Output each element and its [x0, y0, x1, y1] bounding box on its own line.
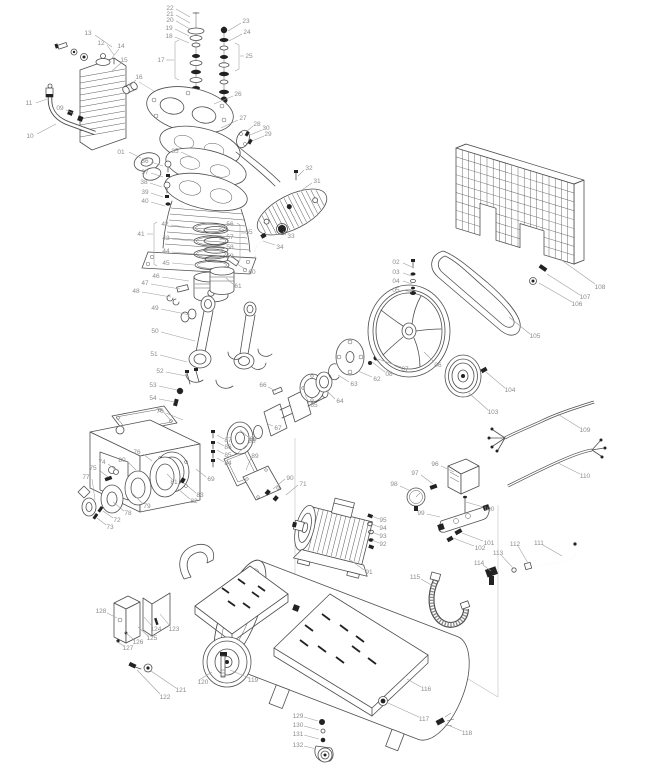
callout-11: 11: [26, 100, 33, 107]
callout-51: 51: [150, 351, 158, 358]
callout-66: 66: [259, 382, 267, 389]
callout-leader-111: [543, 545, 562, 556]
discharge-pipe: [485, 542, 577, 585]
rod-caps: [185, 368, 233, 388]
callout-98: 98: [390, 481, 398, 488]
callout-09: 09: [56, 105, 64, 112]
callout-07: 07: [401, 366, 409, 373]
filter-fittings: [54, 43, 87, 61]
piston-small: [210, 267, 234, 295]
callout-63: 63: [350, 381, 358, 388]
callout-37: 37: [141, 169, 149, 176]
callout-25: 25: [245, 53, 253, 60]
callout-leader-24: [229, 34, 242, 41]
callout-leader-92: [372, 540, 379, 543]
callout-35: 35: [171, 148, 179, 155]
callout-112: 112: [510, 541, 521, 548]
callout-56: 56: [226, 221, 234, 228]
callout-52: 52: [156, 368, 164, 375]
callout-leader-104: [486, 372, 505, 388]
callout-leader-17: [175, 40, 179, 80]
callout-leader-101: [462, 533, 483, 541]
callout-leader-98: [400, 486, 411, 491]
callout-leader-46: [162, 277, 189, 281]
callout-62: 62: [373, 376, 381, 383]
air-filter: [80, 54, 126, 151]
callout-129: 129: [293, 713, 304, 720]
callout-70: 70: [156, 408, 164, 415]
callout-19: 19: [165, 25, 173, 32]
callout-leader-122: [137, 670, 160, 694]
wheel-assembly: [128, 637, 251, 687]
callout-33: 33: [287, 233, 295, 240]
callout-105: 105: [530, 333, 541, 340]
callout-22: 22: [166, 5, 174, 12]
callout-leader-103: [469, 393, 488, 410]
woodruff-key: [273, 387, 283, 394]
callout-38: 38: [140, 179, 148, 186]
power-cable-2: [508, 439, 607, 487]
caster-assembly: [315, 719, 333, 762]
callout-leader-01: [129, 152, 141, 158]
callout-leader-54: [159, 399, 175, 402]
callout-104: 104: [505, 387, 516, 394]
callout-132: 132: [293, 742, 304, 749]
callout-leader-132: [304, 746, 316, 749]
wrist-pin-large: [167, 285, 189, 305]
callout-leader-95: [372, 516, 379, 519]
callout-93: 93: [379, 533, 387, 540]
elbow-fitting: [485, 566, 498, 585]
callout-leader-106: [539, 283, 572, 302]
callout-02: 02: [392, 259, 400, 266]
shaft-flange: [336, 339, 364, 375]
cooler-bolt: [294, 170, 298, 173]
motor-pulley: [445, 355, 488, 397]
callout-leader-25: [235, 43, 239, 71]
hose-flexible: [430, 572, 470, 625]
callout-leader-85: [217, 450, 224, 454]
callout-leader-29: [252, 136, 264, 141]
callout-120: 120: [198, 679, 209, 686]
callout-102: 102: [475, 545, 486, 552]
callout-99: 99: [417, 510, 425, 517]
callout-59: 59: [226, 253, 234, 260]
callout-24: 24: [243, 29, 251, 36]
callout-128: 128: [96, 608, 107, 615]
cover-washer: [114, 470, 119, 475]
pressure-gauge: [407, 488, 425, 511]
callout-94: 94: [379, 525, 387, 532]
belt-guard-grid: [456, 141, 584, 267]
callout-06: 06: [434, 362, 442, 369]
callout-95: 95: [379, 517, 387, 524]
callout-103: 103: [488, 409, 499, 416]
callout-17: 17: [157, 57, 165, 64]
oil-seal: [316, 372, 332, 392]
callout-leader-53: [159, 386, 177, 390]
callout-91: 91: [365, 569, 373, 576]
callout-leader-30: [250, 130, 262, 135]
callout-leader-63: [338, 375, 349, 382]
valve-stack-left: [188, 12, 204, 100]
callout-leader-129: [304, 717, 318, 721]
pressure-switch: [448, 459, 479, 518]
callout-leader-105: [509, 317, 530, 334]
callout-49: 49: [151, 305, 159, 312]
oil-filler: [116, 426, 124, 434]
pipe-nut: [524, 562, 531, 569]
callout-107: 107: [580, 294, 591, 301]
callout-55: 55: [245, 229, 253, 236]
cover-screw: [273, 495, 279, 501]
callout-40: 40: [141, 198, 149, 205]
callout-leader-97: [421, 475, 433, 484]
callout-21: 21: [166, 11, 174, 18]
callout-48: 48: [132, 288, 140, 295]
callout-leader-62: [358, 371, 372, 377]
callout-10: 10: [26, 133, 34, 140]
callout-leader-100: [466, 502, 483, 507]
callout-03: 03: [392, 269, 400, 276]
callout-leader-39: [151, 193, 163, 197]
callout-20: 20: [166, 17, 174, 24]
callout-34: 34: [276, 244, 284, 251]
callout-88: 88: [248, 438, 256, 445]
callout-leader-32: [298, 170, 304, 176]
callout-41: 41: [137, 231, 145, 238]
callout-75: 75: [89, 465, 97, 472]
snap-ring: [328, 364, 339, 380]
callout-42: 42: [161, 221, 169, 228]
callout-130: 130: [293, 722, 304, 729]
callout-45: 45: [162, 260, 170, 267]
callout-79: 79: [143, 503, 151, 510]
tank-leg: [269, 685, 289, 709]
callout-108: 108: [595, 284, 606, 291]
callout-47: 47: [141, 280, 149, 287]
callout-leader-28: [246, 126, 253, 132]
callout-57: 57: [226, 234, 234, 241]
callout-44: 44: [162, 248, 170, 255]
callout-23: 23: [242, 18, 250, 25]
callout-leader-110: [558, 463, 580, 474]
callout-77: 77: [82, 474, 90, 481]
callout-81: 81: [170, 479, 178, 486]
callout-36: 36: [141, 158, 149, 165]
callout-leader-130: [304, 726, 319, 730]
callout-leader-50: [161, 332, 195, 341]
callout-leader-40: [151, 202, 165, 206]
callout-leader-22: [176, 9, 190, 17]
callout-53: 53: [149, 382, 157, 389]
callout-leader-12: [107, 45, 114, 55]
callout-leader-102: [453, 538, 474, 546]
callout-leader-23: [228, 23, 241, 31]
callout-125: 125: [147, 635, 158, 642]
callout-82: 82: [190, 498, 198, 505]
callout-04: 04: [392, 278, 400, 285]
pipe-ferrule: [512, 568, 516, 572]
callout-50: 50: [151, 328, 159, 335]
callout-127: 127: [123, 645, 134, 652]
callout-leader-10: [37, 124, 56, 134]
callout-08: 08: [385, 371, 393, 378]
callout-71: 71: [299, 481, 307, 488]
callout-32: 32: [305, 165, 313, 172]
tank-leg: [386, 729, 405, 750]
connecting-rod-2: [234, 302, 256, 369]
callout-54: 54: [149, 395, 157, 402]
gauge-fitting: [429, 484, 437, 490]
tank-handle-left: [180, 544, 214, 579]
callout-leader-11: [36, 99, 47, 103]
connecting-rod-1: [189, 296, 215, 368]
callout-leader-73: [97, 518, 106, 525]
callout-121: 121: [176, 687, 187, 694]
callout-leader-02: [403, 263, 412, 267]
exploded-air-compressor-diagram: 0102030405060708091011121314151617181920…: [0, 0, 646, 768]
callout-117: 117: [419, 716, 430, 723]
callout-leader-20: [176, 21, 190, 29]
callout-74: 74: [98, 459, 106, 466]
callout-111: 111: [534, 540, 544, 547]
callout-87: 87: [224, 437, 232, 444]
callout-18: 18: [165, 33, 173, 40]
callout-43: 43: [162, 235, 170, 242]
callout-39: 39: [141, 189, 149, 196]
callout-leader-66: [268, 387, 276, 391]
callout-leader-21: [176, 15, 190, 23]
callout-leader-94: [372, 524, 379, 527]
callout-leader-112: [518, 546, 528, 563]
callout-61: 61: [234, 283, 242, 290]
wheel-bolt: [128, 662, 141, 669]
callout-65: 65: [310, 402, 318, 409]
flywheel-washer: [368, 361, 372, 365]
electric-box: [114, 596, 140, 643]
callout-26: 26: [234, 91, 242, 98]
callout-72: 72: [113, 517, 121, 524]
motor-bolts: [367, 513, 374, 549]
callout-86: 86: [224, 444, 232, 451]
callout-60: 60: [248, 269, 256, 276]
callout-78: 78: [124, 510, 132, 517]
callout-131: 131: [293, 731, 304, 738]
callout-16: 16: [135, 74, 143, 81]
callout-114: 114: [474, 560, 485, 567]
cap-hardware: [173, 388, 183, 406]
callout-leader-47: [151, 284, 180, 289]
callout-leader-38: [150, 183, 162, 187]
callout-leader-48: [142, 292, 171, 297]
callout-80: 80: [118, 457, 126, 464]
callout-90: 90: [286, 475, 294, 482]
callout-leader-52: [166, 372, 186, 376]
callout-15: 15: [120, 57, 128, 64]
callout-110: 110: [580, 473, 591, 480]
callout-124: 124: [151, 626, 162, 633]
callout-85: 85: [224, 452, 232, 459]
parts-diagram-page: 0102030405060708091011121314151617181920…: [0, 0, 646, 768]
callout-27: 27: [239, 115, 247, 122]
callout-30: 30: [262, 125, 270, 132]
callout-97: 97: [411, 470, 419, 477]
callout-leader-107: [547, 274, 580, 295]
callout-leader-84: [217, 458, 224, 462]
callout-leader-99: [427, 514, 440, 517]
callout-69: 69: [207, 476, 215, 483]
callout-leader-115: [421, 579, 433, 586]
callout-leader-18: [175, 37, 189, 43]
callout-leader-71: [286, 485, 298, 495]
callout-29: 29: [264, 131, 272, 138]
guard-fasteners: [530, 264, 548, 284]
callout-84: 84: [224, 460, 232, 467]
callout-100: 100: [484, 506, 495, 513]
callout-118: 118: [462, 730, 473, 737]
power-cable-1: [488, 402, 595, 453]
callout-123: 123: [169, 626, 180, 633]
callout-leader-19: [175, 29, 189, 36]
valve-stack-right: [219, 26, 229, 104]
electric-motor: [284, 490, 384, 580]
callout-leader-55: [237, 223, 240, 262]
callout-leader-131: [304, 735, 319, 739]
callout-leader-118: [445, 724, 462, 731]
callout-122: 122: [160, 694, 171, 701]
callout-96: 96: [431, 461, 439, 468]
callout-13: 13: [84, 30, 92, 37]
callout-leader-34: [263, 241, 275, 245]
callout-64: 64: [336, 398, 344, 405]
callout-126: 126: [133, 639, 144, 646]
callout-67: 67: [274, 425, 282, 432]
callout-01: 01: [117, 149, 125, 156]
callout-leader-87: [217, 435, 224, 439]
callout-113: 113: [493, 550, 504, 557]
callout-31: 31: [313, 178, 321, 185]
callout-89: 89: [251, 453, 259, 460]
callout-119: 119: [248, 677, 259, 684]
callout-116: 116: [421, 686, 432, 693]
callout-115: 115: [410, 574, 421, 581]
crankcase-bolts: [211, 430, 215, 467]
callout-46: 46: [152, 273, 160, 280]
callout-leader-51: [160, 355, 187, 362]
callout-73: 73: [106, 524, 114, 531]
callout-58: 58: [226, 244, 234, 251]
callout-109: 109: [580, 427, 591, 434]
callout-05: 05: [392, 287, 400, 294]
callout-14: 14: [117, 43, 125, 50]
callout-leader-86: [217, 442, 224, 446]
callout-leader-109: [556, 413, 580, 428]
callout-83: 83: [196, 492, 204, 499]
callout-leader-121: [151, 671, 176, 688]
rod-bushing: [181, 309, 196, 322]
manifold: [437, 504, 490, 532]
intake-muffler: [132, 150, 162, 182]
callout-76: 76: [133, 449, 141, 456]
callout-28: 28: [253, 121, 261, 128]
callout-106: 106: [572, 301, 583, 308]
callout-92: 92: [379, 541, 387, 548]
